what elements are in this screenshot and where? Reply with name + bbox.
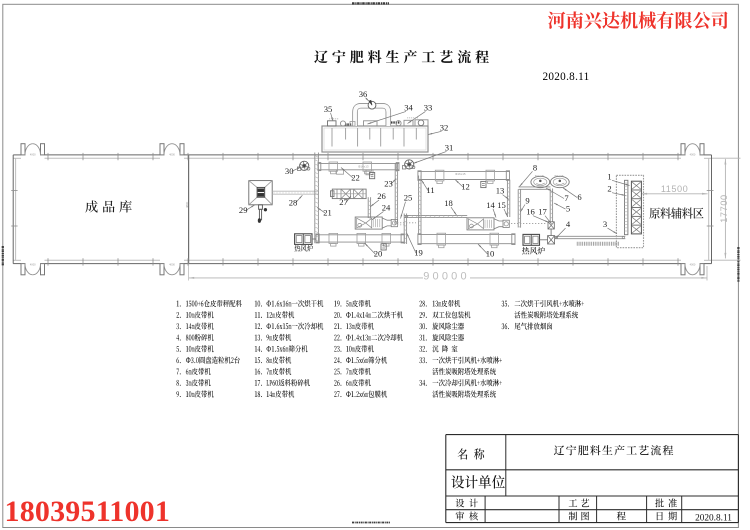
- svg-text:2020.8.11: 2020.8.11: [543, 71, 590, 83]
- svg-text:20: 20: [374, 249, 383, 259]
- svg-text:4000: 4000: [690, 262, 696, 266]
- svg-text:2020.8.11: 2020.8.11: [695, 514, 732, 524]
- svg-text:5: 5: [566, 204, 570, 214]
- svg-text:27: 27: [339, 197, 348, 207]
- svg-text:18039511001: 18039511001: [5, 495, 171, 528]
- svg-text:19: 19: [414, 248, 423, 258]
- svg-text:7: 7: [564, 193, 569, 203]
- svg-text:13: 13: [496, 186, 505, 196]
- svg-text:4000: 4000: [30, 153, 36, 157]
- svg-text:22: 22: [351, 173, 360, 183]
- svg-text:Φ16x15: Φ16x15: [455, 172, 466, 176]
- svg-text:Φ3x=Φ: Φ3x=Φ: [535, 174, 545, 178]
- svg-text:8: 8: [533, 162, 537, 172]
- svg-text:24: 24: [382, 203, 391, 213]
- svg-text:4800: 4800: [185, 201, 189, 208]
- svg-text:32: 32: [440, 122, 449, 132]
- svg-text:11500: 11500: [661, 184, 688, 194]
- svg-text:10: 10: [486, 249, 495, 259]
- svg-text:23: 23: [384, 179, 393, 189]
- svg-text:4000: 4000: [30, 262, 36, 266]
- svg-text:Φ14x13: Φ14x13: [358, 165, 369, 169]
- svg-text:15: 15: [497, 200, 506, 210]
- svg-text:4000: 4000: [169, 153, 175, 157]
- svg-text:34: 34: [404, 102, 413, 112]
- svg-text:14: 14: [486, 200, 495, 210]
- svg-text:26: 26: [377, 191, 386, 201]
- svg-text:90000: 90000: [423, 271, 470, 283]
- svg-text:16: 16: [526, 207, 535, 217]
- svg-text:33: 33: [424, 102, 433, 112]
- svg-text:6: 6: [577, 192, 582, 202]
- svg-text:12: 12: [461, 182, 470, 192]
- svg-text:18: 18: [444, 198, 453, 208]
- svg-text:9: 9: [525, 196, 529, 206]
- svg-text:17700: 17700: [719, 194, 729, 223]
- svg-text:35: 35: [324, 104, 333, 114]
- svg-text:21: 21: [323, 207, 332, 217]
- svg-text:4000: 4000: [690, 153, 696, 157]
- svg-text:1: 1: [607, 171, 611, 181]
- svg-text:Φ3x=Φ: Φ3x=Φ: [554, 174, 564, 178]
- svg-text:4: 4: [566, 219, 571, 229]
- svg-text:11: 11: [426, 185, 434, 195]
- svg-text:29: 29: [239, 205, 248, 215]
- svg-text:28: 28: [289, 197, 298, 207]
- svg-text:30: 30: [285, 166, 294, 176]
- svg-text:4000: 4000: [169, 262, 175, 266]
- svg-text:17: 17: [538, 207, 547, 217]
- svg-text:2: 2: [607, 184, 611, 194]
- svg-text:25: 25: [404, 193, 413, 203]
- svg-text:36: 36: [359, 89, 368, 99]
- svg-text:31: 31: [445, 142, 454, 152]
- svg-text:3: 3: [603, 219, 607, 229]
